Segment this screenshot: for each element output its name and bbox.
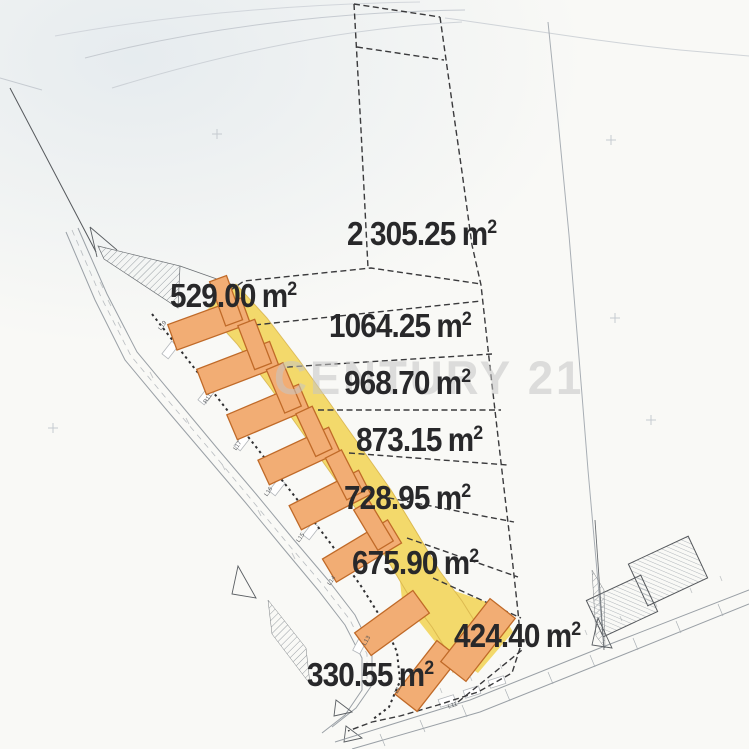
area-label-330: 330.55m2 [307, 656, 433, 694]
area-label-873: 873.15m2 [356, 421, 482, 459]
area-label-2305: 2 305.25m2 [347, 215, 496, 253]
cadastral-site-plan: CENTURY 21 2 305.25m2 529.00m2 1064.25m2… [0, 0, 749, 749]
area-label-728: 728.95m2 [344, 479, 470, 517]
area-label-675: 675.90m2 [352, 544, 478, 582]
area-label-1064: 1064.25m2 [329, 307, 471, 345]
area-label-968: 968.70m2 [344, 364, 470, 402]
area-label-529: 529.00m2 [170, 277, 296, 315]
area-label-424: 424.40m2 [454, 617, 580, 655]
